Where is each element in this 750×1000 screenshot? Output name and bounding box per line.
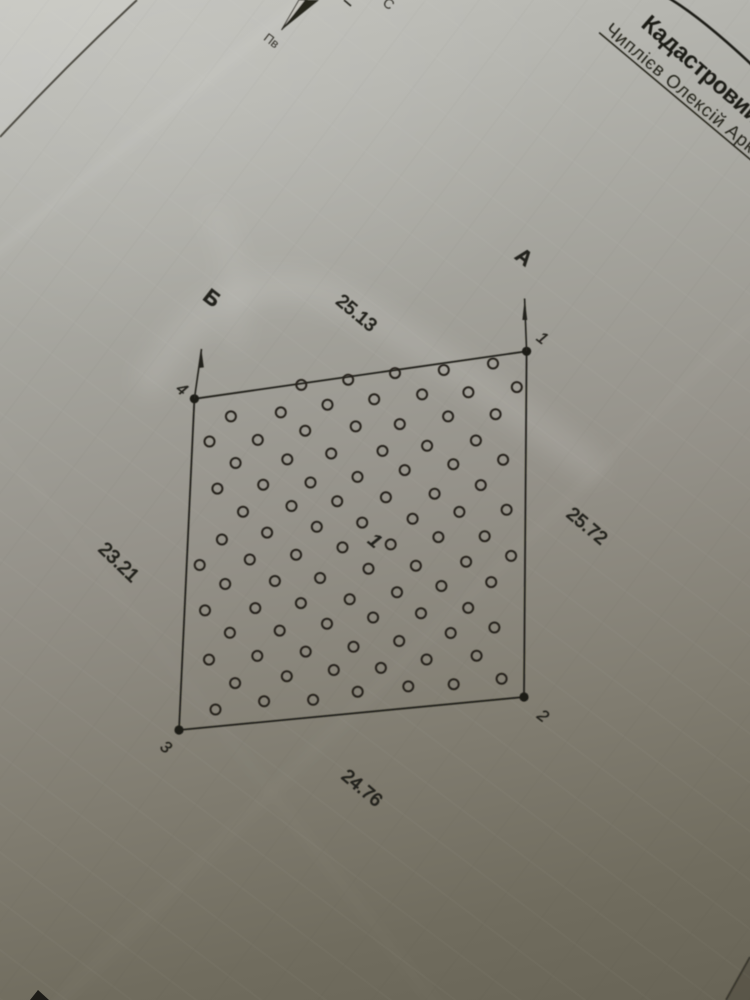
svg-text:3: 3 [157, 737, 176, 757]
svg-text:1: 1 [363, 529, 386, 553]
svg-text:С: С [380, 0, 398, 13]
svg-text:А: А [511, 244, 537, 271]
svg-text:24.76: 24.76 [338, 765, 387, 811]
svg-text:2: 2 [533, 706, 552, 726]
svg-text:4: 4 [173, 379, 191, 399]
svg-text:25.72: 25.72 [563, 503, 612, 549]
svg-text:1: 1 [533, 328, 551, 348]
